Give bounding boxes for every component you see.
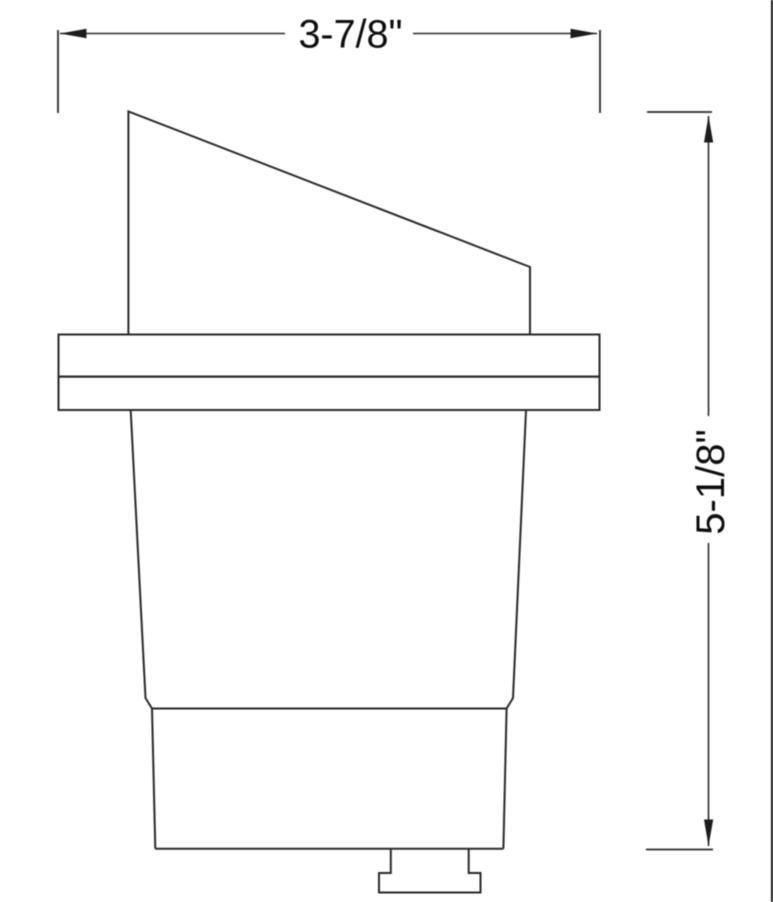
svg-text:5-1/8": 5-1/8" [689, 429, 733, 534]
svg-text:3-7/8": 3-7/8" [298, 13, 402, 57]
